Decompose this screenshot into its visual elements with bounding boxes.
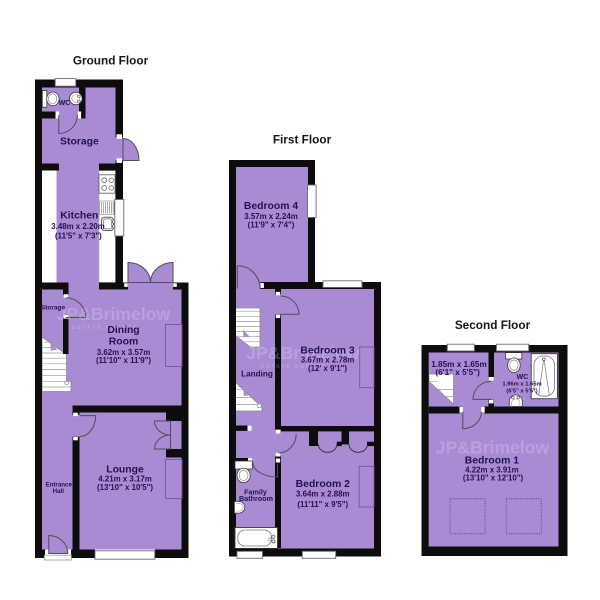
svg-text:(12' x 9'1"): (12' x 9'1") <box>308 364 347 373</box>
svg-text:Room: Room <box>109 337 138 348</box>
svg-text:(6'5" x 5'5"): (6'5" x 5'5") <box>506 389 538 395</box>
svg-text:(11'11" x 9'5"): (11'11" x 9'5") <box>297 500 348 509</box>
svg-text:(13'10" x 12'10"): (13'10" x 12'10") <box>463 473 524 482</box>
svg-text:(6'1" x 5'5"): (6'1" x 5'5") <box>435 368 480 377</box>
svg-text:Landing: Landing <box>241 370 273 379</box>
svg-text:(11'9" x 7'4"): (11'9" x 7'4") <box>248 220 295 229</box>
svg-text:3.64m x 2.88m: 3.64m x 2.88m <box>296 489 350 498</box>
svg-text:First Floor: First Floor <box>273 133 332 147</box>
svg-text:3.48m x 2.20m: 3.48m x 2.20m <box>51 222 105 231</box>
svg-text:Dining: Dining <box>107 325 139 336</box>
svg-text:(11'10" x 11'9"): (11'10" x 11'9") <box>96 356 151 365</box>
svg-text:1.96m x 1.65m: 1.96m x 1.65m <box>502 382 541 388</box>
svg-text:Storage: Storage <box>60 136 99 147</box>
svg-text:Bathroom: Bathroom <box>239 494 273 503</box>
svg-text:Ground Floor: Ground Floor <box>73 54 149 68</box>
svg-text:JP&Brimelow: JP&Brimelow <box>57 304 171 324</box>
svg-text:Lounge: Lounge <box>106 464 144 475</box>
svg-text:(11'5" x 7'3"): (11'5" x 7'3") <box>55 231 102 240</box>
svg-text:(13'10" x 10'5"): (13'10" x 10'5") <box>97 483 153 492</box>
svg-text:Storage: Storage <box>41 304 66 311</box>
svg-text:Second Floor: Second Floor <box>455 318 531 332</box>
svg-text:WC: WC <box>59 100 71 107</box>
svg-text:WC: WC <box>517 374 529 381</box>
svg-text:Bedroom 4: Bedroom 4 <box>244 201 298 212</box>
svg-text:Hall: Hall <box>53 488 65 495</box>
svg-text:Kitchen: Kitchen <box>60 211 98 222</box>
